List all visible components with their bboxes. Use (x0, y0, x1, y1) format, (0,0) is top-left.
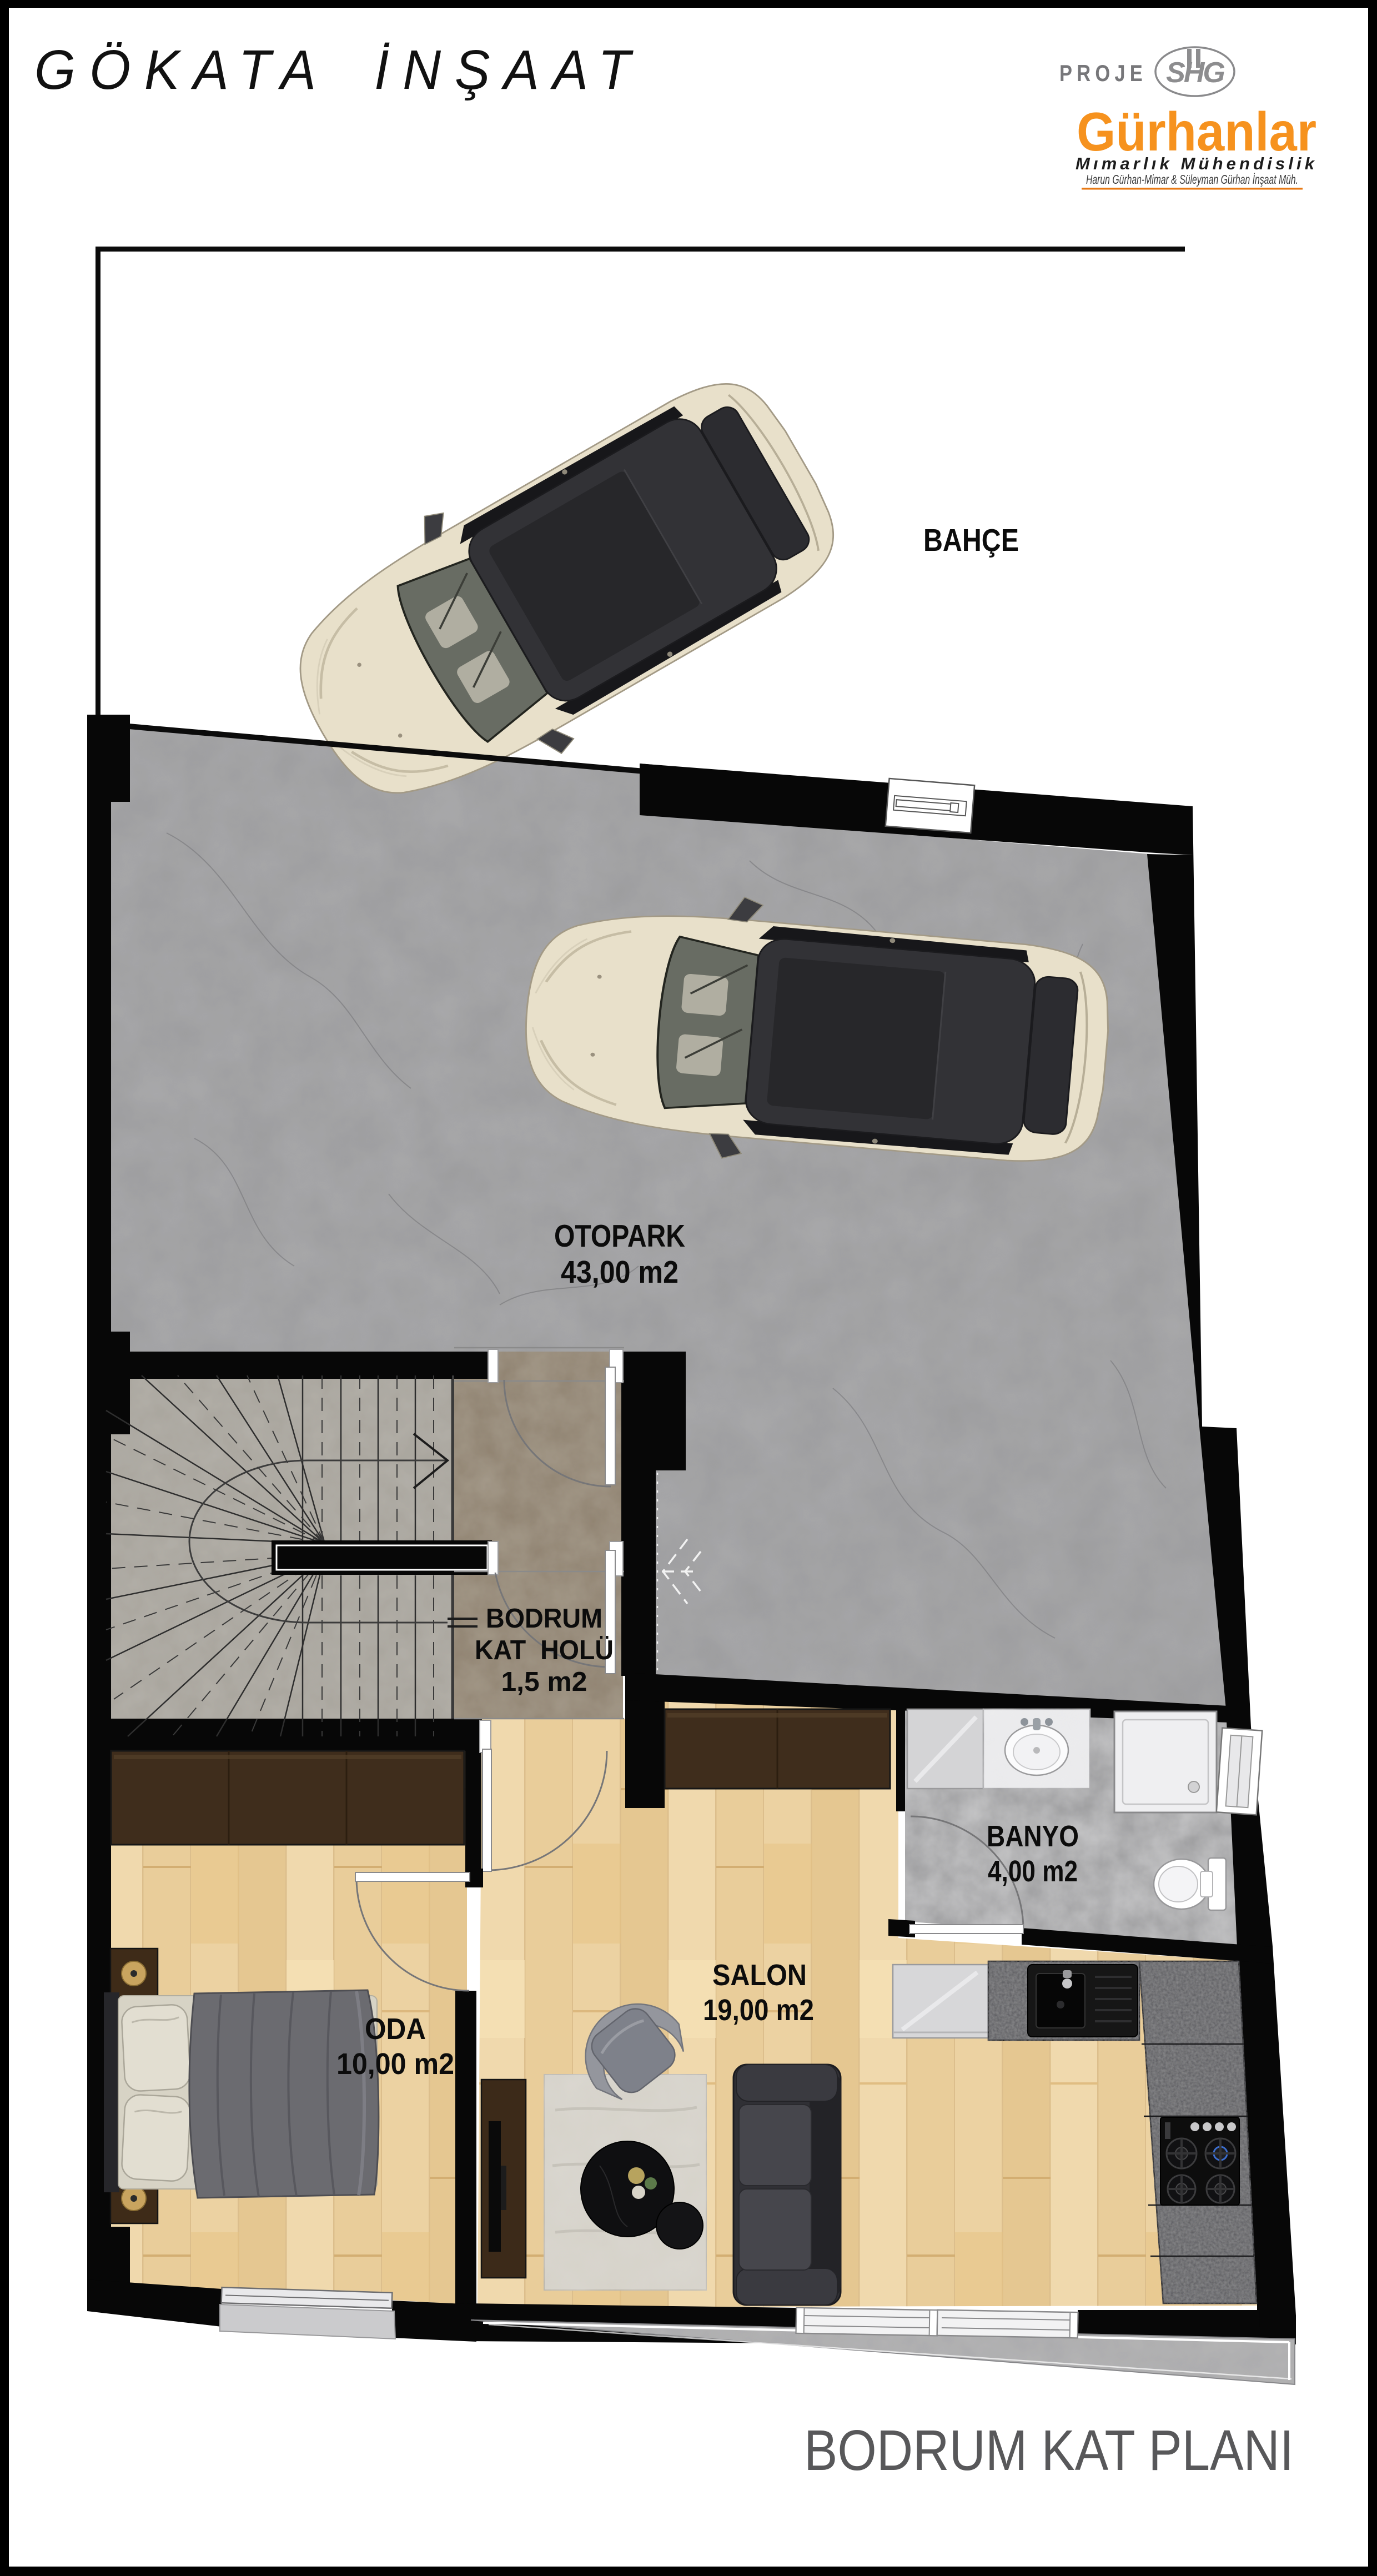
svg-text:SALON: SALON (712, 1959, 807, 1992)
svg-text:19,00 m2: 19,00 m2 (703, 1993, 814, 2027)
svg-text:BAHÇE: BAHÇE (923, 523, 1019, 558)
svg-text:10,00 m2: 10,00 m2 (336, 2047, 454, 2081)
svg-text:4,00 m2: 4,00 m2 (988, 1855, 1078, 1888)
svg-text:43,00 m2: 43,00 m2 (561, 1254, 679, 1290)
svg-text:ODA: ODA (365, 2012, 426, 2046)
svg-text:PROJE: PROJE (1059, 60, 1147, 86)
svg-text:Harun Gürhan-Mimar & Süleyman: Harun Gürhan-Mimar & Süleyman Gürhan İnş… (1086, 172, 1298, 187)
svg-text:1,5 m2: 1,5 m2 (501, 1667, 587, 1697)
svg-text:BANYO: BANYO (987, 1820, 1079, 1853)
svg-text:BODRUM: BODRUM (486, 1604, 602, 1634)
svg-text:GÖKATA İNŞAAT: GÖKATA İNŞAAT (34, 39, 644, 101)
svg-text:SHG: SHG (1166, 57, 1224, 89)
svg-text:Gürhanlar: Gürhanlar (1077, 101, 1316, 162)
svg-text:OTOPARK: OTOPARK (554, 1218, 685, 1254)
svg-text:BODRUM KAT PLANI: BODRUM KAT PLANI (804, 2418, 1294, 2482)
svg-text:KAT HOLÜ: KAT HOLÜ (475, 1635, 614, 1665)
